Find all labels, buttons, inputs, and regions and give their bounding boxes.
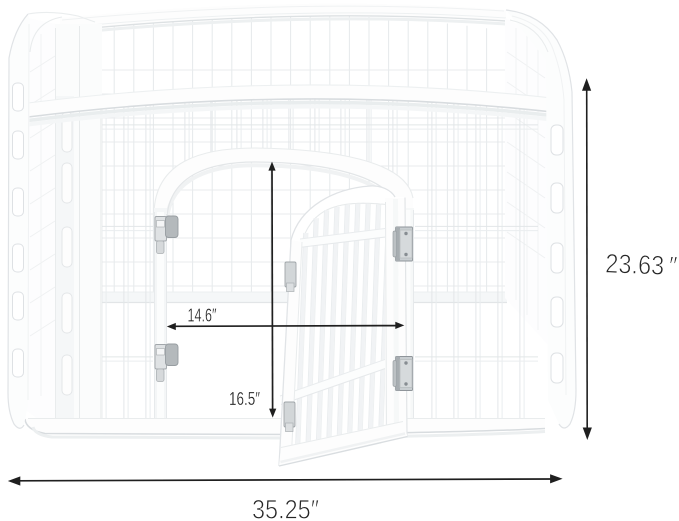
svg-text:14.6″: 14.6″	[188, 306, 217, 326]
svg-text:23.63 ″: 23.63 ″	[605, 249, 678, 282]
svg-text:16.5″: 16.5″	[229, 388, 260, 409]
svg-text:35.25″: 35.25″	[252, 495, 319, 521]
